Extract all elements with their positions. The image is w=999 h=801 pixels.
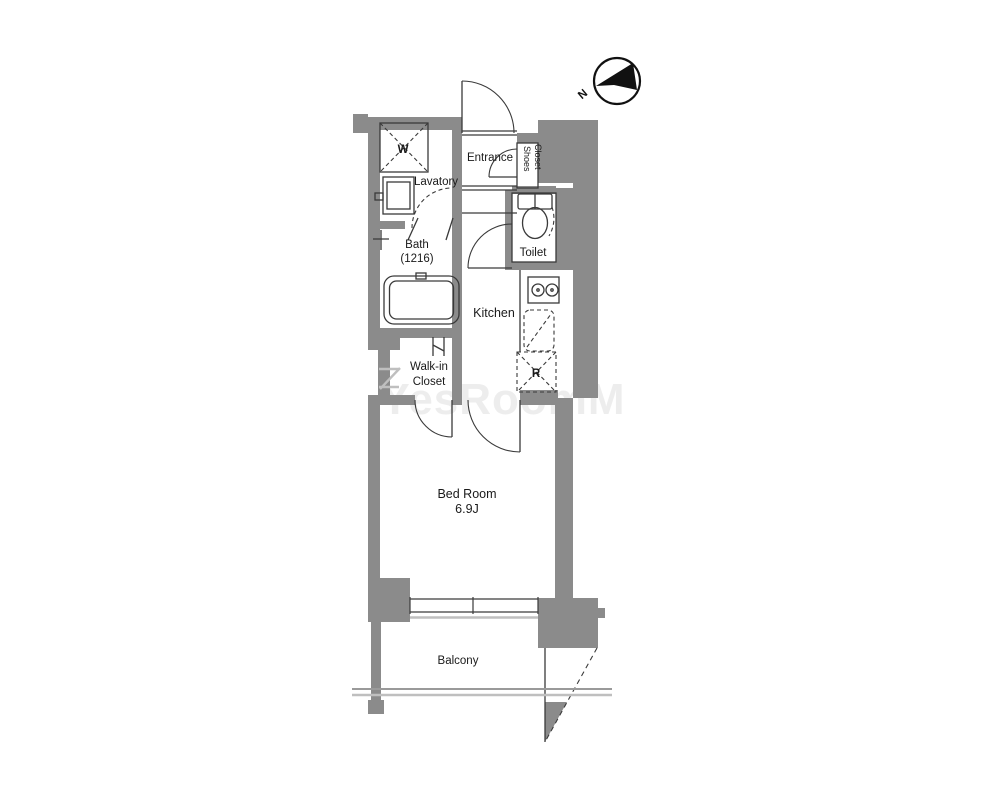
wall-toilet-left bbox=[505, 190, 512, 268]
floor-plan-drawing: YesRoomM bbox=[0, 0, 999, 801]
wall-lavatory-bath bbox=[368, 221, 405, 229]
refrigerator-label: R bbox=[532, 368, 541, 380]
wall-shoes-closet-top bbox=[517, 133, 538, 143]
wall-corridor-west bbox=[452, 130, 462, 405]
room-label-entrance: Entrance bbox=[467, 152, 513, 164]
room-label-bath-line1: Bath bbox=[405, 239, 429, 251]
wall-bedroom-right bbox=[555, 398, 573, 598]
pillar-bottom-right bbox=[538, 598, 598, 648]
room-label-bedroom-line1: Bed Room bbox=[437, 487, 496, 501]
wall-bedroom-top-right bbox=[520, 390, 558, 405]
wall-right-upper bbox=[573, 183, 598, 398]
wall-left-upper bbox=[368, 117, 380, 350]
room-label-toilet: Toilet bbox=[520, 247, 548, 259]
room-label-shoes-closet-line1: Shoes bbox=[522, 146, 532, 172]
room-label-wic-line2: Closet bbox=[413, 376, 446, 388]
wall-bedroom-left bbox=[368, 395, 380, 578]
room-label-kitchen: Kitchen bbox=[473, 306, 515, 320]
room-label-balcony: Balcony bbox=[438, 655, 479, 667]
room-label-bedroom-line2: 6.9J bbox=[455, 502, 479, 516]
room-label-shoes-closet-line2: Closet bbox=[533, 144, 543, 170]
floor-plan-page: YesRoomM bbox=[0, 0, 999, 801]
room-label-wic-line1: Walk-in bbox=[410, 361, 448, 373]
wall-top-right-block bbox=[538, 120, 598, 183]
washer-label: W bbox=[398, 144, 409, 156]
room-label-lavatory: Lavatory bbox=[414, 176, 458, 188]
wall-toilet-right bbox=[556, 188, 573, 268]
wall-toilet-bottom bbox=[505, 262, 573, 270]
pillar-bottom-left bbox=[368, 578, 410, 622]
wall-balcony-left-foot bbox=[368, 700, 384, 714]
pillar-notch bbox=[598, 608, 605, 618]
room-label-bath-line2: (1216) bbox=[400, 253, 433, 265]
